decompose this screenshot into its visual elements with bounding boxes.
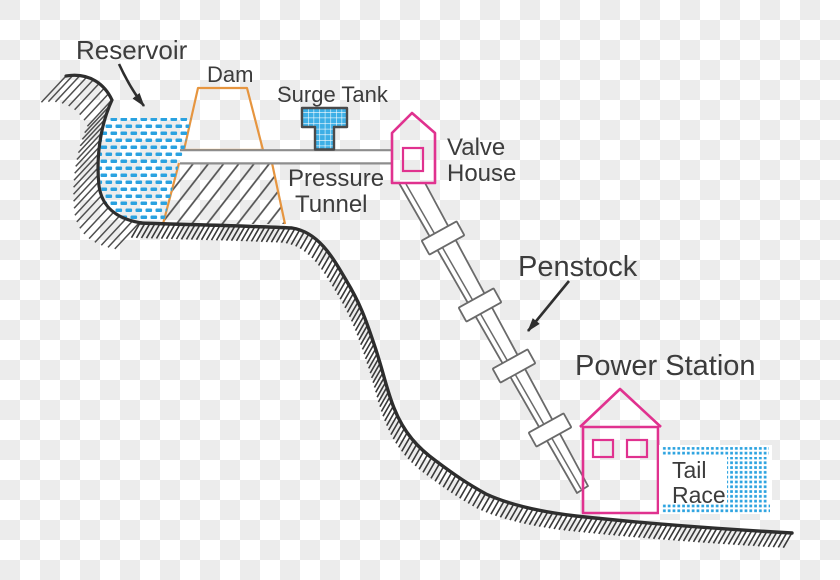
power-station-building bbox=[580, 389, 661, 513]
hachure-tick bbox=[369, 354, 378, 369]
hachure-tick bbox=[376, 378, 385, 393]
hachure-tick bbox=[370, 358, 379, 373]
dam-lower-body bbox=[163, 163, 285, 224]
dam-upper-body bbox=[184, 88, 263, 150]
hachure-tick bbox=[372, 363, 381, 378]
pressure-tunnel-label: Pressure Tunnel bbox=[288, 165, 391, 218]
valve-house-window bbox=[403, 148, 423, 171]
hachure-tick bbox=[380, 392, 389, 407]
valve-house-label: Valve House bbox=[447, 134, 516, 187]
hachure-tick bbox=[354, 311, 363, 326]
hachure-tick bbox=[389, 415, 398, 430]
hachure-tick bbox=[377, 382, 386, 397]
power-station-window-left bbox=[593, 440, 613, 457]
hachure-tick bbox=[345, 293, 354, 308]
hachure-tick bbox=[391, 420, 400, 435]
hachure-tick bbox=[387, 411, 396, 426]
pressure-tunnel-pipe bbox=[180, 150, 392, 163]
hachure-tick bbox=[41, 76, 66, 102]
hachure-tick bbox=[362, 335, 371, 350]
hachure-tick bbox=[357, 321, 366, 336]
diagram-canvas: Reservoir Dam Surge Tank Pressure Tunnel… bbox=[0, 0, 840, 580]
hachure-tick bbox=[356, 316, 365, 331]
hachure-tick bbox=[359, 325, 368, 340]
hachure-tick bbox=[350, 302, 359, 317]
hachure-tick bbox=[366, 344, 375, 359]
surge-tank-label: Surge Tank bbox=[277, 82, 389, 107]
hachure-tick bbox=[74, 175, 99, 201]
hachure-tick bbox=[347, 298, 356, 313]
hachure-tick bbox=[385, 406, 394, 421]
power-station-label: Power Station bbox=[575, 350, 756, 382]
tail-race-water-top bbox=[662, 447, 769, 457]
hachure-tick bbox=[74, 168, 99, 194]
hachure-tick bbox=[364, 339, 373, 354]
hachure-tick bbox=[343, 289, 352, 304]
hachure-tick bbox=[48, 75, 73, 101]
surge-tank bbox=[302, 108, 347, 150]
hachure-tick bbox=[361, 330, 370, 345]
tail-race-water-end bbox=[727, 457, 768, 504]
hachure-tick bbox=[75, 147, 100, 173]
penstock-label: Penstock bbox=[518, 251, 638, 283]
dam-label: Dam bbox=[207, 62, 253, 87]
hachure-tick bbox=[74, 182, 99, 208]
penstock-pipe bbox=[399, 183, 588, 493]
hachure-tick bbox=[352, 307, 361, 322]
reservoir-label: Reservoir bbox=[76, 35, 188, 65]
hachure-tick bbox=[378, 387, 387, 402]
hachure-tick bbox=[373, 368, 382, 383]
power-station-window-right bbox=[627, 440, 647, 457]
hachure-tick bbox=[381, 397, 390, 412]
hachure-tick bbox=[367, 349, 376, 364]
hydro-plant-diagram: Reservoir Dam Surge Tank Pressure Tunnel… bbox=[0, 0, 840, 580]
valve-house bbox=[392, 113, 435, 183]
reservoir-pointer-arrow bbox=[119, 64, 144, 106]
hachure-tick bbox=[374, 373, 383, 388]
hachure-tick bbox=[383, 402, 392, 417]
penstock-pointer-arrow bbox=[528, 281, 569, 331]
